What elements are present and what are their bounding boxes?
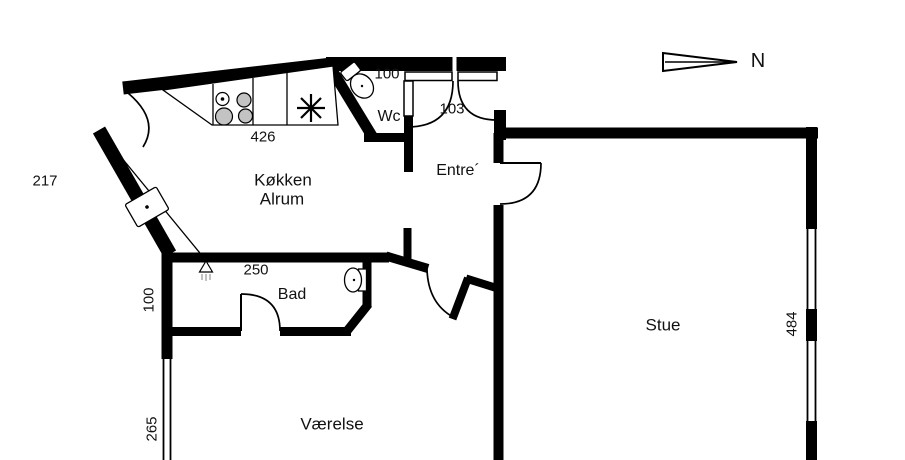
room-label-stue: Stue	[646, 317, 681, 334]
room-label-wc: Wc	[377, 109, 400, 125]
dimension-left-upper: 217	[32, 174, 57, 189]
bad-door-arc	[241, 294, 280, 331]
room-label-vaerelse: Værelse	[300, 416, 363, 433]
dimension-left-window: 265	[145, 416, 160, 441]
entrance-door-leaf-right	[458, 72, 497, 81]
room-label-kitchen-line2: Alrum	[260, 191, 304, 208]
dimension-right-window: 484	[785, 311, 800, 336]
dimension-left-wall: 100	[142, 287, 157, 312]
room-label-bad: Bad	[278, 287, 306, 303]
shower-icon	[200, 261, 213, 281]
dimension-bad-width: 250	[243, 263, 268, 278]
entrance-door-leaf-left	[405, 72, 452, 81]
room-label-entre: Entre´	[436, 163, 480, 179]
stue-door-arc	[500, 163, 541, 204]
dimension-wc-width: 100	[374, 67, 399, 82]
floor-plan: Køkken Alrum Wc Entre´ Bad Værelse Stue …	[0, 0, 905, 460]
dimension-entrance-door: 103	[439, 102, 464, 117]
room-label-kitchen-line1: Køkken	[254, 172, 312, 189]
dimension-kitchen-counter: 426	[250, 130, 275, 145]
north-arrow-icon	[663, 53, 737, 71]
compass-north-label: N	[751, 51, 765, 71]
kitchen-door-arc	[128, 93, 149, 147]
wc-door-leaf	[404, 81, 413, 116]
kitchen-sink-icon	[297, 94, 325, 122]
vaerelse-door-arc	[427, 269, 453, 317]
floor-plan-drawing	[0, 0, 905, 460]
bad-toilet-icon	[345, 268, 367, 292]
